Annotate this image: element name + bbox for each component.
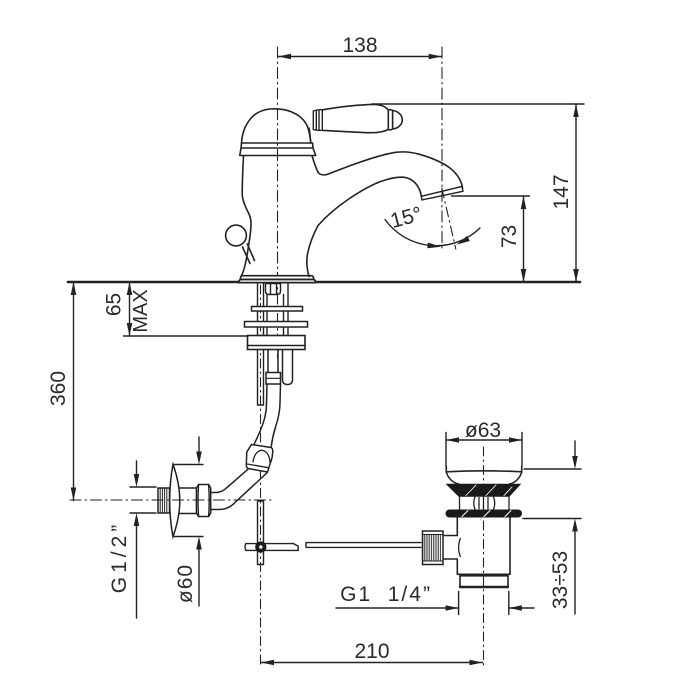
svg-text:ø63: ø63: [465, 419, 501, 442]
svg-text:147: 147: [550, 174, 573, 209]
svg-text:G1/2”: G1/2”: [108, 521, 131, 594]
svg-text:138: 138: [342, 34, 377, 57]
svg-text:73: 73: [498, 225, 521, 248]
svg-text:65: 65: [103, 293, 126, 316]
svg-text:210: 210: [354, 640, 389, 663]
svg-text:15°: 15°: [388, 203, 425, 233]
svg-text:ø60: ø60: [174, 564, 197, 603]
svg-text:33÷53: 33÷53: [549, 551, 572, 609]
svg-text:G1 1/4”: G1 1/4”: [340, 583, 432, 606]
svg-text:MAX: MAX: [130, 289, 152, 332]
svg-text:360: 360: [47, 371, 70, 406]
